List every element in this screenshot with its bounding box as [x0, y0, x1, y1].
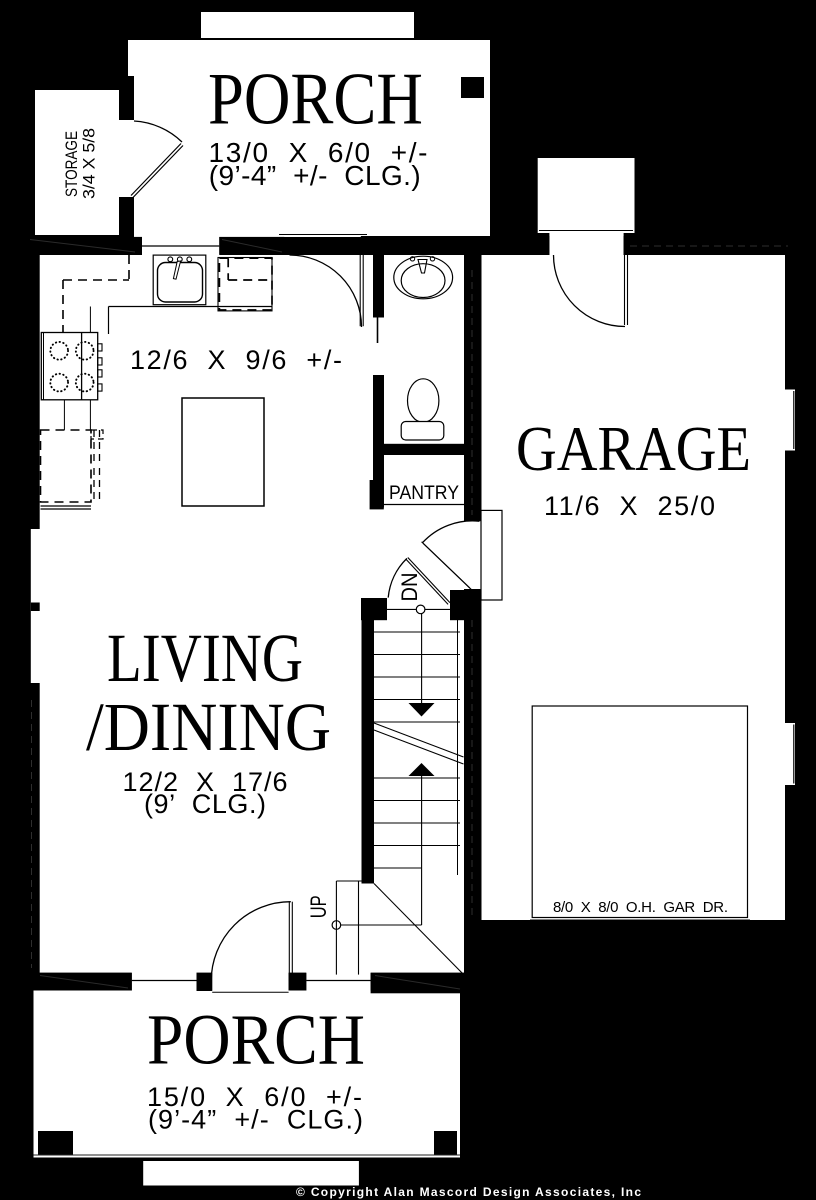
- svg-text:GARAGE: GARAGE: [516, 414, 751, 484]
- svg-text:(9’ CLG.): (9’ CLG.): [144, 789, 266, 819]
- svg-text:3/4 X 5/8: 3/4 X 5/8: [80, 128, 99, 199]
- svg-text:(9’-4” +/- CLG.): (9’-4” +/- CLG.): [209, 160, 421, 191]
- svg-text:PANTRY: PANTRY: [389, 483, 459, 504]
- svg-text:(9’-4” +/- CLG.): (9’-4” +/- CLG.): [148, 1105, 363, 1135]
- svg-text:PORCH: PORCH: [147, 1000, 365, 1080]
- svg-text:UP: UP: [306, 895, 331, 918]
- svg-text:8/0 X 8/0 O.H. GAR DR.: 8/0 X 8/0 O.H. GAR DR.: [553, 899, 728, 916]
- svg-text:PORCH: PORCH: [208, 59, 423, 141]
- svg-text:© Copyright Alan Mascord Desig: © Copyright Alan Mascord Design Associat…: [296, 1185, 641, 1199]
- svg-text:LIVING: LIVING: [107, 620, 303, 696]
- svg-text:DN: DN: [397, 573, 422, 602]
- svg-text:STORAGE: STORAGE: [62, 131, 81, 197]
- svg-text:/DINING: /DINING: [86, 689, 331, 765]
